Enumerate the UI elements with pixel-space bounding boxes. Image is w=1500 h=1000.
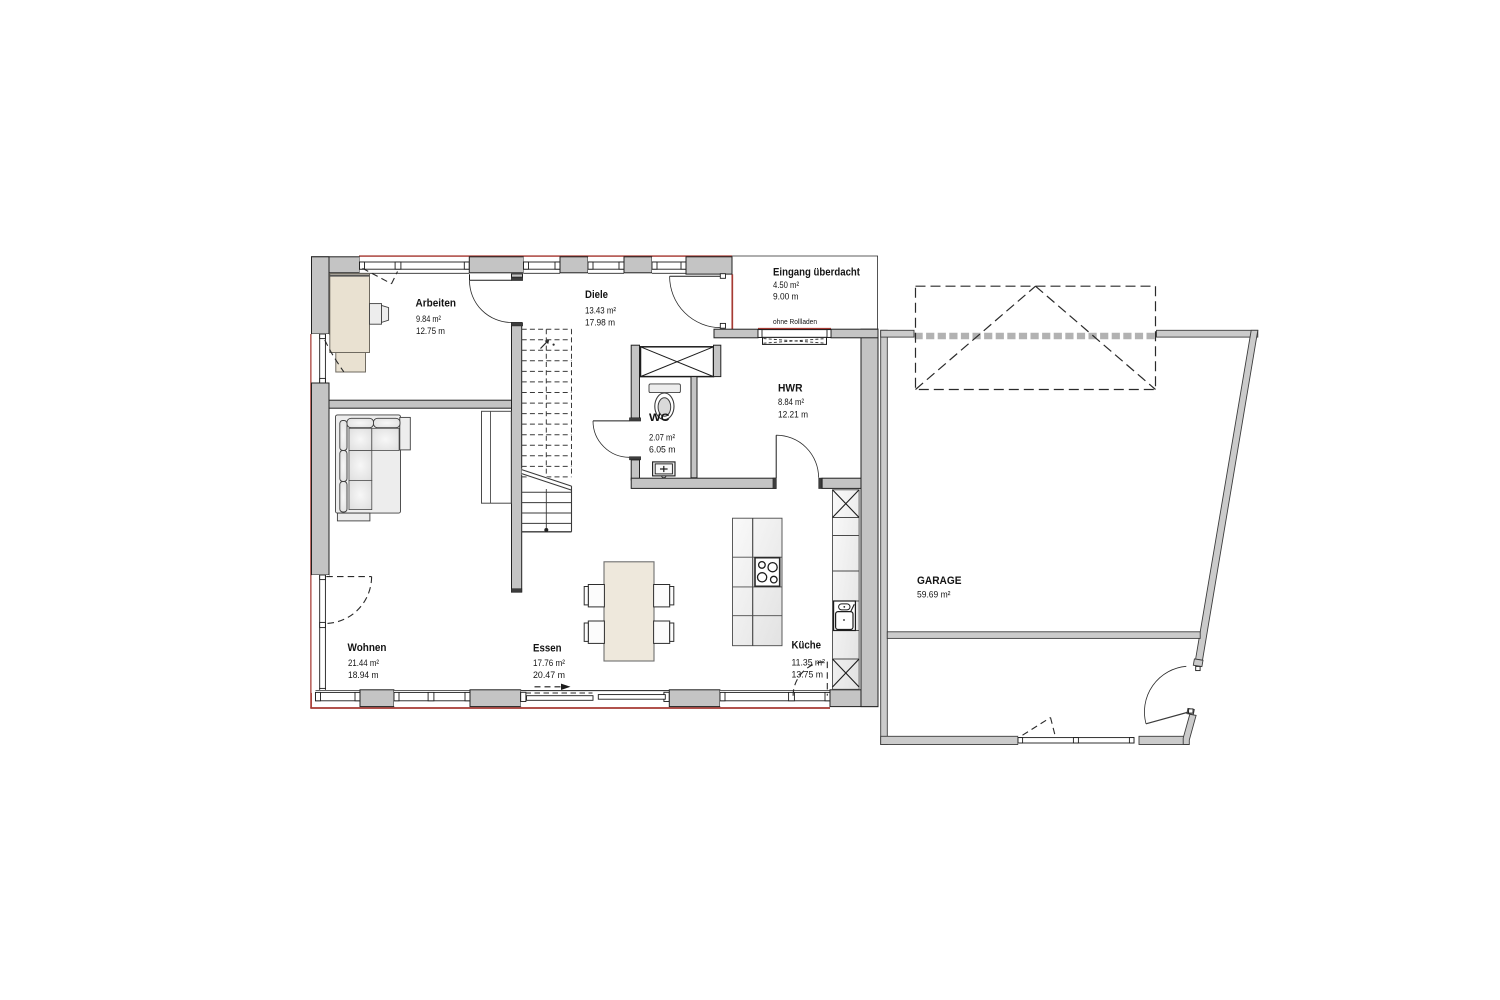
svg-text:Wohnen: Wohnen — [348, 642, 387, 654]
svg-text:9.00 m: 9.00 m — [773, 292, 799, 302]
svg-text:17.98 m: 17.98 m — [585, 318, 615, 328]
svg-text:13.75 m: 13.75 m — [792, 670, 824, 680]
svg-text:20.47 m: 20.47 m — [533, 670, 565, 680]
svg-text:Arbeiten: Arbeiten — [416, 298, 457, 310]
svg-text:GARAGE: GARAGE — [917, 575, 962, 587]
svg-text:8.84 m²: 8.84 m² — [778, 397, 804, 407]
svg-text:WC: WC — [649, 412, 670, 424]
svg-text:11.35 m²: 11.35 m² — [792, 658, 826, 668]
svg-text:Essen: Essen — [533, 643, 562, 655]
svg-text:2.07 m²: 2.07 m² — [649, 433, 675, 443]
svg-text:HWR: HWR — [778, 382, 803, 394]
svg-text:59.69 m²: 59.69 m² — [917, 590, 951, 600]
svg-text:17.76 m²: 17.76 m² — [533, 658, 565, 668]
svg-text:12.21 m: 12.21 m — [778, 409, 808, 419]
svg-text:13.43 m²: 13.43 m² — [585, 306, 616, 316]
svg-text:6.05 m: 6.05 m — [649, 445, 676, 455]
svg-text:ohne Rollladen: ohne Rollladen — [773, 317, 817, 326]
svg-text:12.75 m: 12.75 m — [416, 326, 445, 336]
svg-text:Eingang überdacht: Eingang überdacht — [773, 267, 860, 279]
svg-text:18.94 m: 18.94 m — [348, 670, 379, 680]
svg-text:Diele: Diele — [585, 289, 608, 301]
svg-text:Küche: Küche — [792, 640, 822, 652]
svg-text:21.44 m²: 21.44 m² — [348, 658, 379, 668]
svg-text:4.50 m²: 4.50 m² — [773, 280, 799, 290]
svg-text:9.84 m²: 9.84 m² — [416, 314, 441, 324]
